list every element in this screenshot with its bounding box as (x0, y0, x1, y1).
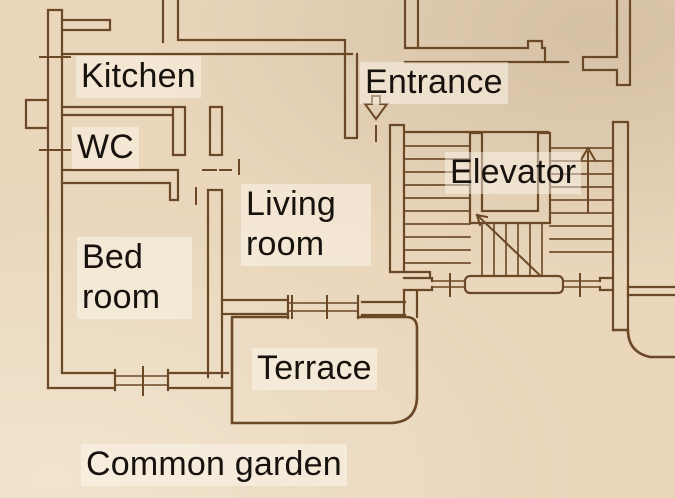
stairs-up-arrow-icon (581, 148, 595, 212)
floor-plan-image: Kitchen WC Entrance Elevator Living room… (0, 0, 675, 498)
room-label-terrace: Terrace (252, 348, 377, 390)
window-tick (40, 57, 70, 150)
room-label-common-garden: Common garden (81, 444, 347, 486)
door-opening-dash (203, 160, 239, 174)
walls-living-room (222, 296, 405, 318)
stairs-direction-line (477, 215, 549, 284)
room-label-elevator: Elevator (445, 152, 581, 194)
room-label-bedroom: Bed room (77, 237, 192, 319)
room-label-entrance: Entrance (360, 62, 508, 104)
room-label-wc: WC (72, 127, 139, 169)
stairwell-bottom-walls (404, 274, 675, 357)
window-tick (292, 296, 327, 318)
room-label-kitchen: Kitchen (76, 56, 201, 98)
stairs-bottom-flight (477, 215, 549, 284)
room-label-living-room: Living room (241, 184, 371, 266)
balcony-right (613, 330, 675, 357)
stair-landing (465, 276, 563, 293)
